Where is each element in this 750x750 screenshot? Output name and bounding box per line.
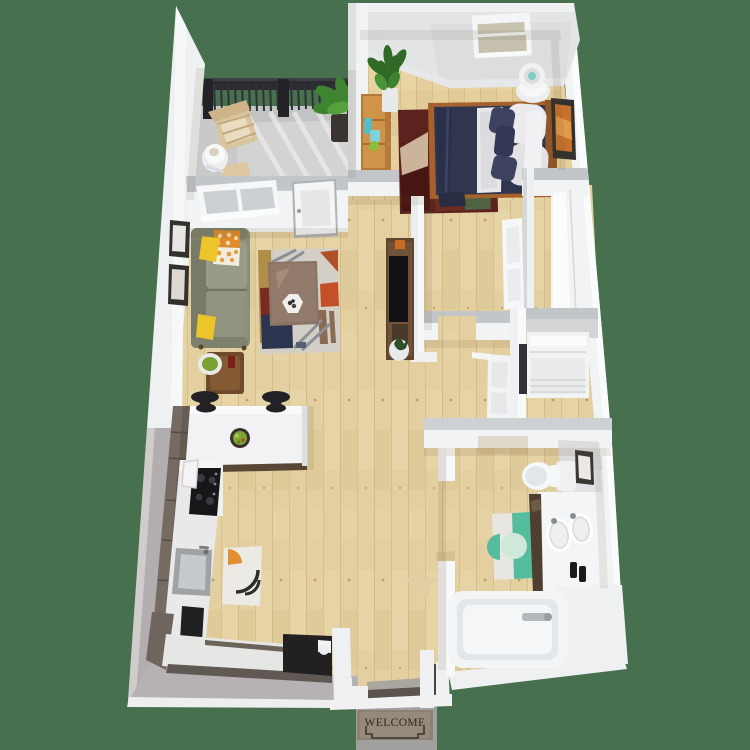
svg-text:WELCOME: WELCOME [365, 717, 426, 729]
